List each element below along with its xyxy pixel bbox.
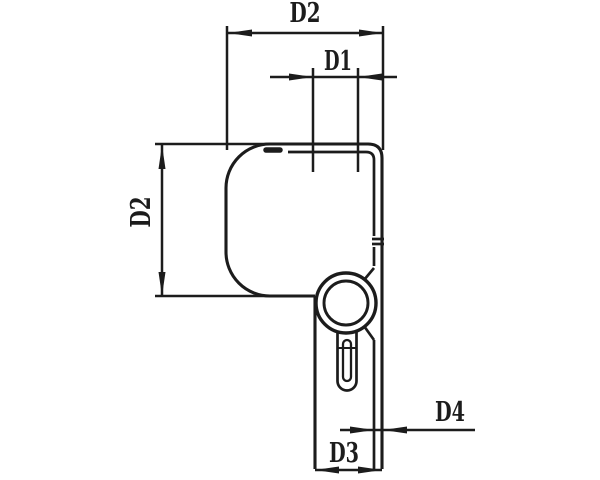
arrowhead-right	[358, 467, 382, 474]
arrowhead-right	[358, 74, 382, 81]
tube-wall-fillet	[364, 326, 374, 340]
arrowhead-left	[289, 74, 313, 81]
dim-label-d3: D3	[329, 438, 359, 469]
arrowhead-right	[383, 427, 407, 434]
dim-label-d2-left: D2	[126, 197, 157, 228]
dimension-d2-left: D2	[126, 144, 272, 296]
arrowhead-top	[159, 145, 166, 169]
dim-label-d1: D1	[324, 46, 352, 77]
dimension-d4: D4	[340, 397, 475, 434]
arrowhead-left	[350, 427, 374, 434]
stem-inner-slot	[343, 340, 351, 381]
profile-cross-section-drawing: D2 D1 D2 D4	[0, 0, 600, 480]
tube-inner-circle	[324, 281, 368, 325]
drawing-canvas: D2 D1 D2 D4	[0, 0, 600, 480]
dim-label-d4: D4	[435, 397, 465, 428]
dimension-d2-top: D2	[227, 0, 383, 150]
arrowhead-left	[228, 30, 252, 37]
arrowhead-right	[359, 30, 383, 37]
dim-label-d2-top: D2	[290, 0, 321, 29]
arrowhead-bottom	[159, 272, 166, 296]
dimension-d3: D3	[315, 438, 382, 474]
tube-feature	[316, 273, 376, 333]
